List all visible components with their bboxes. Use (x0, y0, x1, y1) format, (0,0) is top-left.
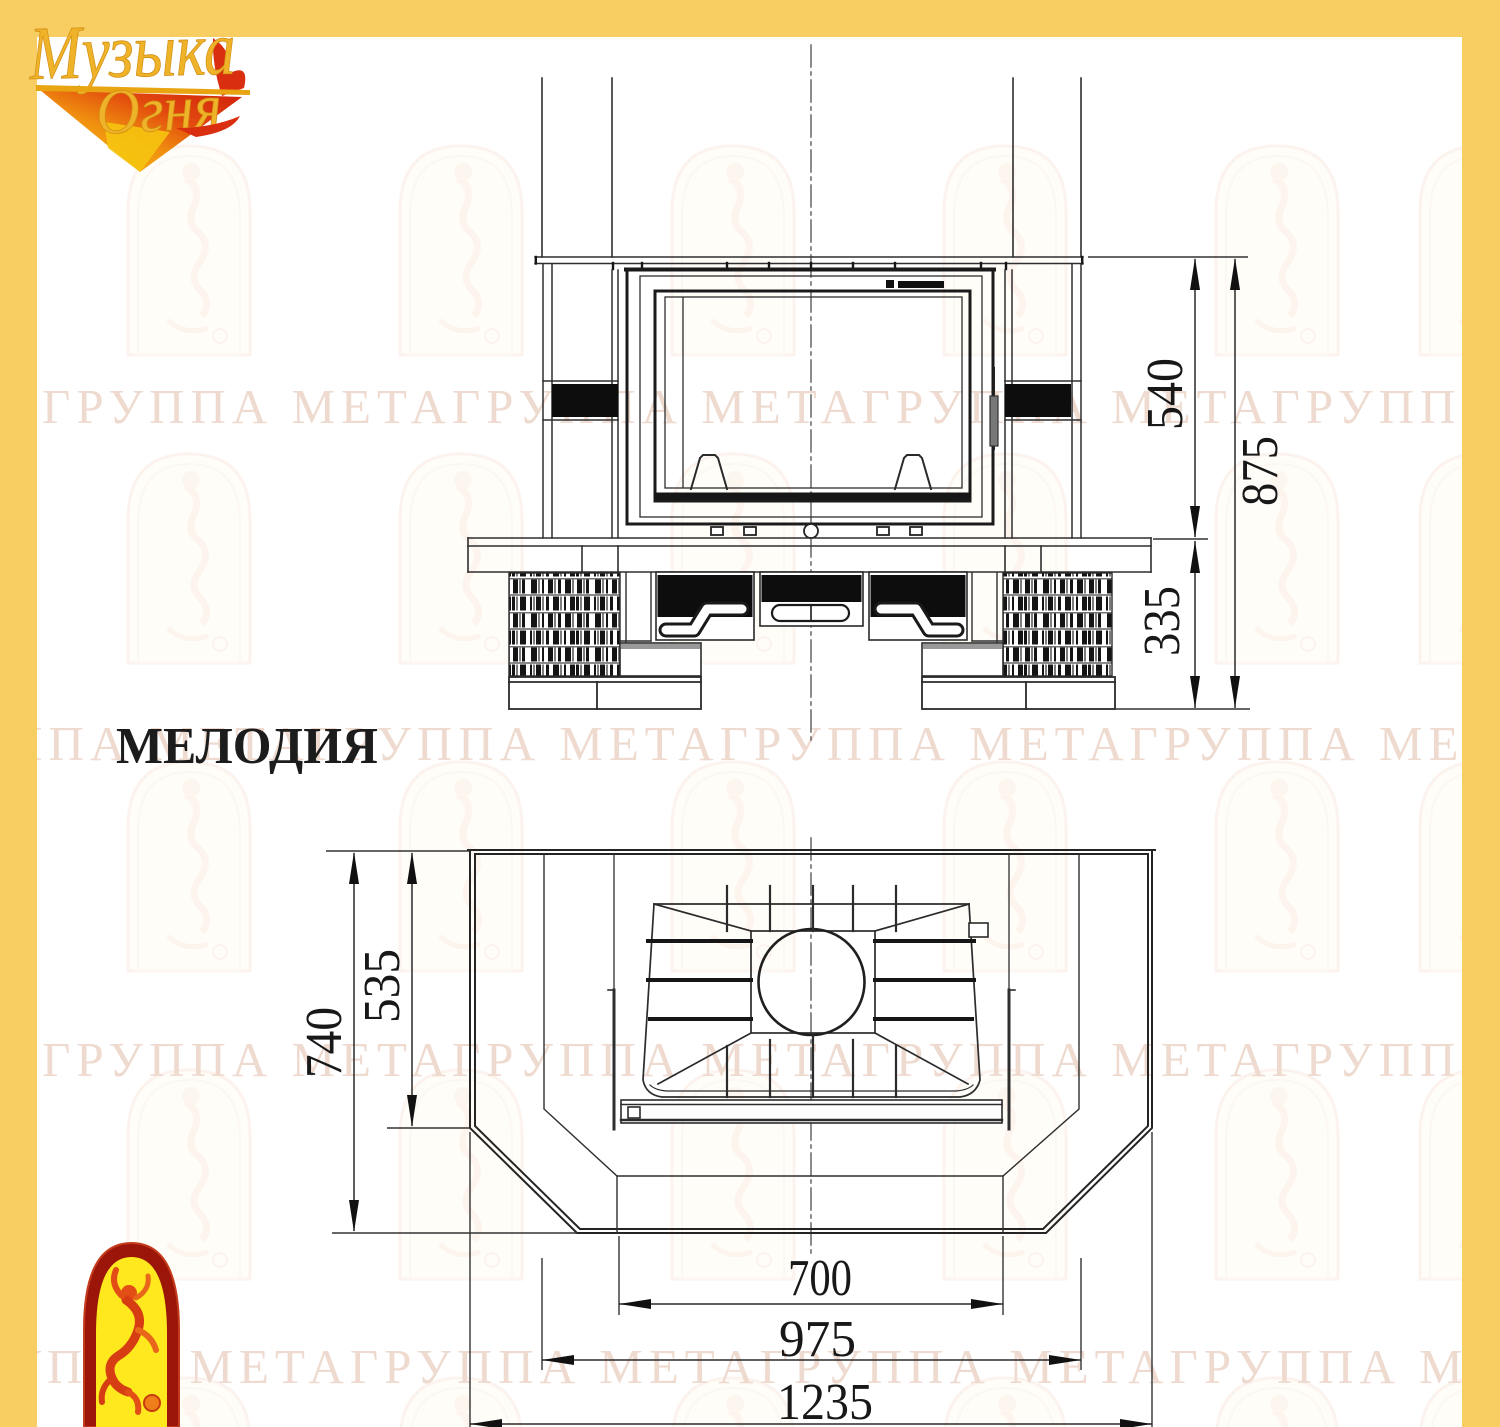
svg-text:700: 700 (788, 1250, 852, 1307)
svg-text:335: 335 (1134, 586, 1191, 656)
svg-text:535: 535 (354, 949, 411, 1023)
svg-text:ГРУППА МЕТАГРУППА МЕТАГРУППА М: ГРУППА МЕТАГРУППА МЕТАГРУППА МЕТАГРУППА … (0, 1339, 1500, 1394)
svg-text:МЕЛОДИЯ: МЕЛОДИЯ (116, 718, 378, 775)
svg-text:740: 740 (296, 1007, 353, 1078)
svg-text:975: 975 (779, 1311, 856, 1368)
svg-text:540: 540 (1137, 358, 1194, 430)
svg-text:875: 875 (1232, 436, 1289, 506)
svg-text:1235: 1235 (777, 1374, 873, 1427)
svg-text:ГРУППА МЕТАГРУППА МЕТАГРУППА М: ГРУППА МЕТАГРУППА МЕТАГРУППА МЕТАГРУППА … (42, 379, 1500, 434)
svg-text:Огня: Огня (94, 70, 224, 147)
